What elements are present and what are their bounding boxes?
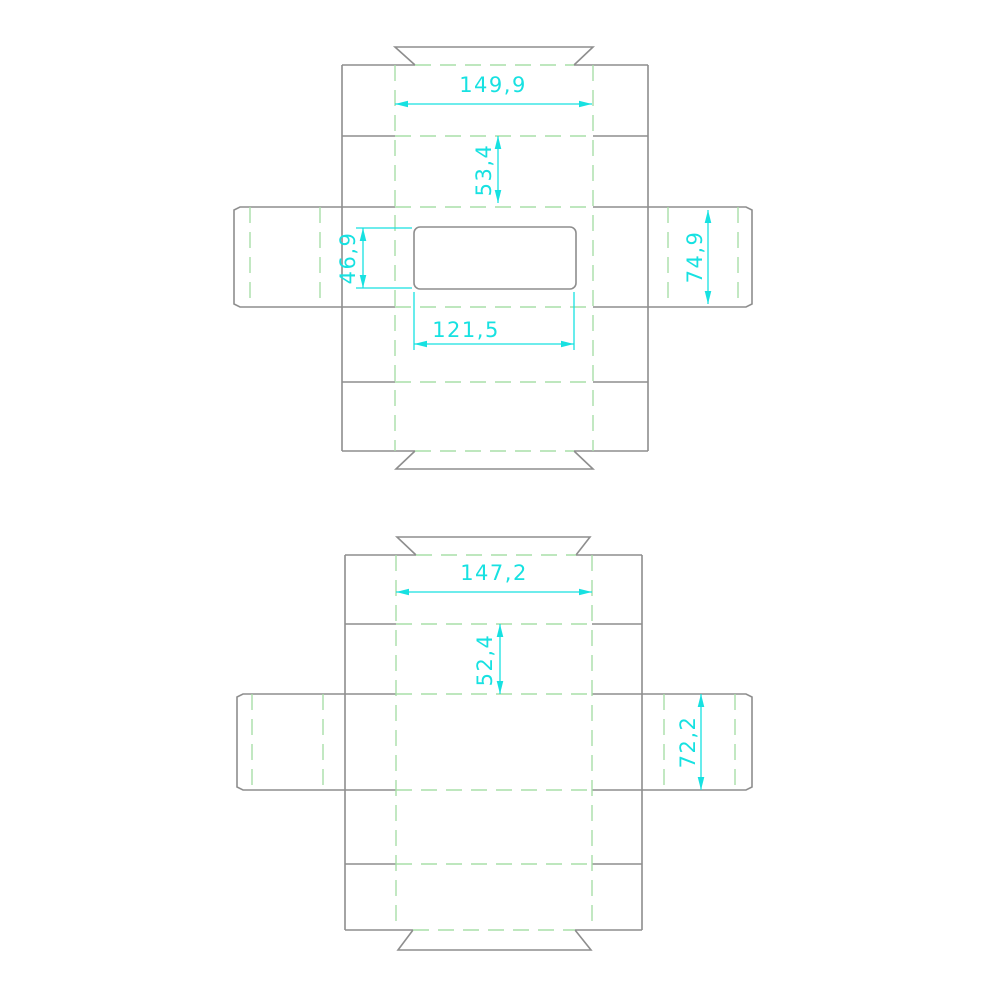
dimensions-1: 149,9 53,4 46,9 74,9 121,5 bbox=[336, 73, 708, 350]
dieline-drawings: 149,9 53,4 46,9 74,9 121,5 bbox=[0, 0, 1000, 1000]
dimension-label-window-height: 46,9 bbox=[336, 232, 360, 285]
fold-lines-2 bbox=[252, 555, 735, 930]
dieline-plain: 147,2 52,4 72,2 bbox=[237, 537, 752, 950]
dimension-label-side-flap-height-2: 72,2 bbox=[676, 716, 700, 769]
top-flap-2 bbox=[397, 537, 590, 555]
dimensions-2: 147,2 52,4 72,2 bbox=[396, 561, 701, 790]
fold-lines-1 bbox=[250, 65, 738, 451]
dimension-label-side-flap-height-1: 74,9 bbox=[683, 231, 707, 284]
window-cutout bbox=[414, 227, 576, 289]
dimension-label-upper-panel-height-2: 52,4 bbox=[473, 634, 497, 687]
bottom-flap-1 bbox=[396, 451, 593, 469]
dimension-label-panel-width-1: 149,9 bbox=[459, 73, 527, 97]
dimension-label-window-width: 121,5 bbox=[432, 318, 500, 342]
dieline-with-window: 149,9 53,4 46,9 74,9 121,5 bbox=[234, 47, 752, 469]
cut-lines-2 bbox=[237, 537, 752, 950]
cut-lines-1 bbox=[234, 47, 752, 469]
bottom-flap-2 bbox=[398, 930, 591, 950]
dimension-label-panel-width-2: 147,2 bbox=[460, 561, 528, 585]
top-flap-1 bbox=[395, 47, 593, 65]
dimension-label-upper-panel-height-1: 53,4 bbox=[472, 144, 496, 197]
cad-canvas: 149,9 53,4 46,9 74,9 121,5 bbox=[0, 0, 1000, 1000]
left-wing-2 bbox=[237, 694, 345, 790]
